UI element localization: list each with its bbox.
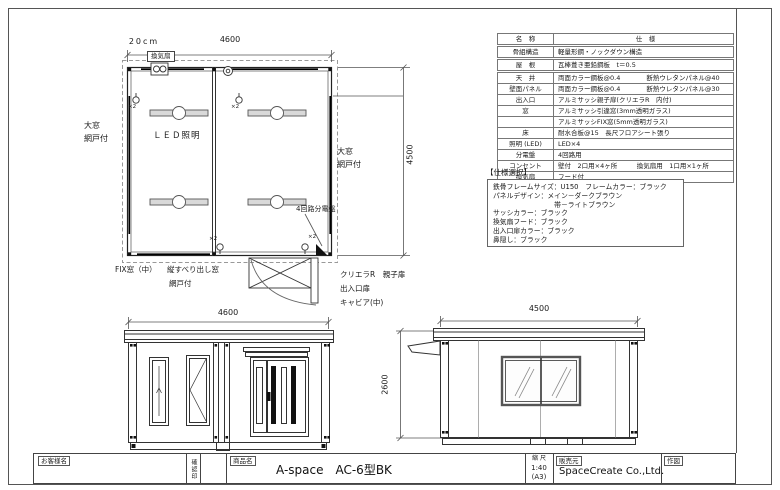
spec-select-title: 【仕様選択】 [486, 169, 531, 178]
entrance-door-front [244, 348, 310, 437]
big-window-right-label-2: 網戸付 [337, 160, 361, 169]
product-name-label: 商品名 [230, 456, 256, 466]
spec-select-line: サッシカラー：ブラック [493, 209, 678, 218]
seller-label: 販売元 [556, 456, 582, 466]
vent-hood-side [408, 341, 440, 355]
side-elevation-width-dim: 4500 [515, 304, 563, 313]
spec-select-line: 鼻隠し：ブラック [493, 236, 678, 245]
door-label-2: 出入口扉 [340, 285, 370, 294]
distribution-board-label: 4回路分電盤 [296, 205, 335, 213]
corner-post-marks [128, 68, 332, 256]
casement-window-label-2: 網戸付 [169, 280, 192, 289]
spec-select-box: 鉄骨フレームサイズ：U150 フレームカラー：ブラック パネルデザイン：メイン－… [487, 179, 684, 247]
spec-value: アルミサッシ引違窓(3mm透明ガラス) [554, 106, 734, 117]
spec-name: 出入口 [498, 95, 554, 106]
spec-value: 両面カラー鋼板@0.4 断熱ウレタンパネル@30 [554, 84, 734, 95]
led-lighting-label: ＬＥＤ照明 [153, 132, 201, 142]
spec-name [498, 117, 554, 128]
outlet-x2-label-3: ×2 [209, 236, 217, 242]
spec-name: 骨組構造 [498, 46, 554, 59]
spec-row: 照明 (LED)LED×4 [498, 139, 734, 150]
spec-value: 4回路用 [554, 150, 734, 161]
spec-name: 分電盤 [498, 150, 554, 161]
side-elevation-height-dim: 2600 [380, 364, 389, 406]
plan-width-dim-label: 4600 [206, 35, 254, 44]
plan-height-dim-label: 4500 [405, 134, 414, 176]
spec-select-line: 鉄骨フレームサイズ：U150 フレームカラー：ブラック [493, 183, 678, 192]
seller-name: SpaceCreate Co.,Ltd. [559, 466, 664, 478]
door-label-3: キャビア(中) [340, 299, 383, 308]
door-label-1: クリエラR 親子扉 [340, 271, 405, 280]
spec-row: 出入口アルミサッシ親子扉(クリエラR 内付) [498, 95, 734, 106]
spec-select-line: 出入口扉カラー：ブラック [493, 227, 678, 236]
spec-value: LED×4 [554, 139, 734, 150]
spec-row: コンセント壁付 2口用×4ヶ所 換気扇用 1口用×1ヶ所 [498, 161, 734, 172]
title-block: お客様名 確認印 商品名 A-space AC-6型BK 縮 尺 1:40 (A… [33, 453, 736, 484]
approval-stamp-label: 確認印 [187, 456, 200, 483]
big-window-right-label-1: 大窓 [337, 147, 353, 156]
spec-row: アルミサッシFIX窓(5mm透明ガラス) [498, 117, 734, 128]
spec-table: 名 称 仕 様 骨組構造軽量形鋼・ノックダウン構造 屋 根瓦棒葺き亜鉛鋼板 t＝… [497, 33, 734, 183]
big-window-left-label-2: 網戸付 [84, 134, 108, 143]
spec-row: 分電盤4回路用 [498, 150, 734, 161]
spec-name: 窓 [498, 106, 554, 117]
spec-name: 床 [498, 128, 554, 139]
spec-row: 天 井両面カラー鋼板@0.4 断熱ウレタンパネル@40 [498, 72, 734, 84]
spec-row: 窓アルミサッシ引違窓(3mm透明ガラス) [498, 106, 734, 117]
casement-window-label-1: 縦すべり出し窓 [167, 266, 219, 275]
title-block-divider [200, 454, 201, 483]
sliding-window-side [502, 357, 580, 405]
window-glazing-lines [129, 69, 330, 254]
floor-plan-walls [123, 61, 338, 263]
spec-value: アルミサッシFIX窓(5mm透明ガラス) [554, 117, 734, 128]
spec-value: 壁付 2口用×4ヶ所 換気扇用 1口用×1ヶ所 [554, 161, 734, 172]
spec-header-spec: 仕 様 [554, 34, 734, 46]
drawing-sheet: 20cm 4600 換気扇 ＬＥＤ照明 大窓 網戸付 大窓 網戸付 4500 ×… [0, 0, 780, 490]
scale-value: 1:40 [525, 464, 553, 472]
paper-size: (A3) [525, 473, 553, 481]
spec-row: 屋 根瓦棒葺き亜鉛鋼板 t＝0.5 [498, 59, 734, 72]
drawn-by-label: 作図 [664, 456, 683, 466]
spec-value: 軽量形鋼・ノックダウン構造 [554, 46, 734, 59]
customer-name-label: お客様名 [38, 456, 70, 466]
title-block-divider [226, 454, 227, 483]
fix-window-front [150, 358, 169, 426]
spec-name: 屋 根 [498, 59, 554, 72]
spec-table-header: 名 称 仕 様 [498, 34, 734, 46]
outlet-x2-label-4: ×2 [308, 234, 316, 240]
product-name: A-space AC-6型BK [276, 464, 392, 478]
outlet-x2-label-2: ×2 [231, 104, 239, 110]
spec-value: 耐水合板@15 長尺フロアシート張り [554, 128, 734, 139]
led-fixture-symbols [150, 107, 306, 209]
spec-value: 両面カラー鋼板@0.4 断熱ウレタンパネル@40 [554, 72, 734, 84]
spec-row: 壁面パネル両面カラー鋼板@0.4 断熱ウレタンパネル@30 [498, 84, 734, 95]
spec-select-line: 換気扇フード：ブラック [493, 218, 678, 227]
spec-name: 天 井 [498, 72, 554, 84]
spec-header-name: 名 称 [498, 34, 554, 46]
title-block-divider [553, 454, 554, 483]
entrance-door-plan [249, 258, 318, 305]
scale-label: 縮 尺 [525, 456, 553, 463]
vent-fan-label: 換気扇 [147, 51, 175, 62]
spec-name: 照明 (LED) [498, 139, 554, 150]
big-window-left-label-1: 大窓 [84, 121, 100, 130]
side-elevation-drawing [396, 316, 645, 445]
casement-window-front [187, 356, 210, 426]
plan-dimension-lines [125, 50, 411, 259]
spec-row: 骨組構造軽量形鋼・ノックダウン構造 [498, 46, 734, 59]
fix-window-label: FIX窓（中） [115, 266, 157, 275]
spec-value: 瓦棒葺き亜鉛鋼板 t＝0.5 [554, 59, 734, 72]
front-elevation-width-dim: 4600 [204, 308, 252, 317]
front-elevation-drawing [125, 317, 334, 451]
spec-select-line: パネルデザイン：メイン－ダークブラウン [493, 192, 678, 201]
spec-value: アルミサッシ親子扉(クリエラR 内付) [554, 95, 734, 106]
spec-row: 床耐水合板@15 長尺フロアシート張り [498, 128, 734, 139]
outlet-x2-label-1: ×2 [128, 104, 136, 110]
spec-name: 壁面パネル [498, 84, 554, 95]
vent-offset-dim-label: 20cm [126, 37, 162, 46]
